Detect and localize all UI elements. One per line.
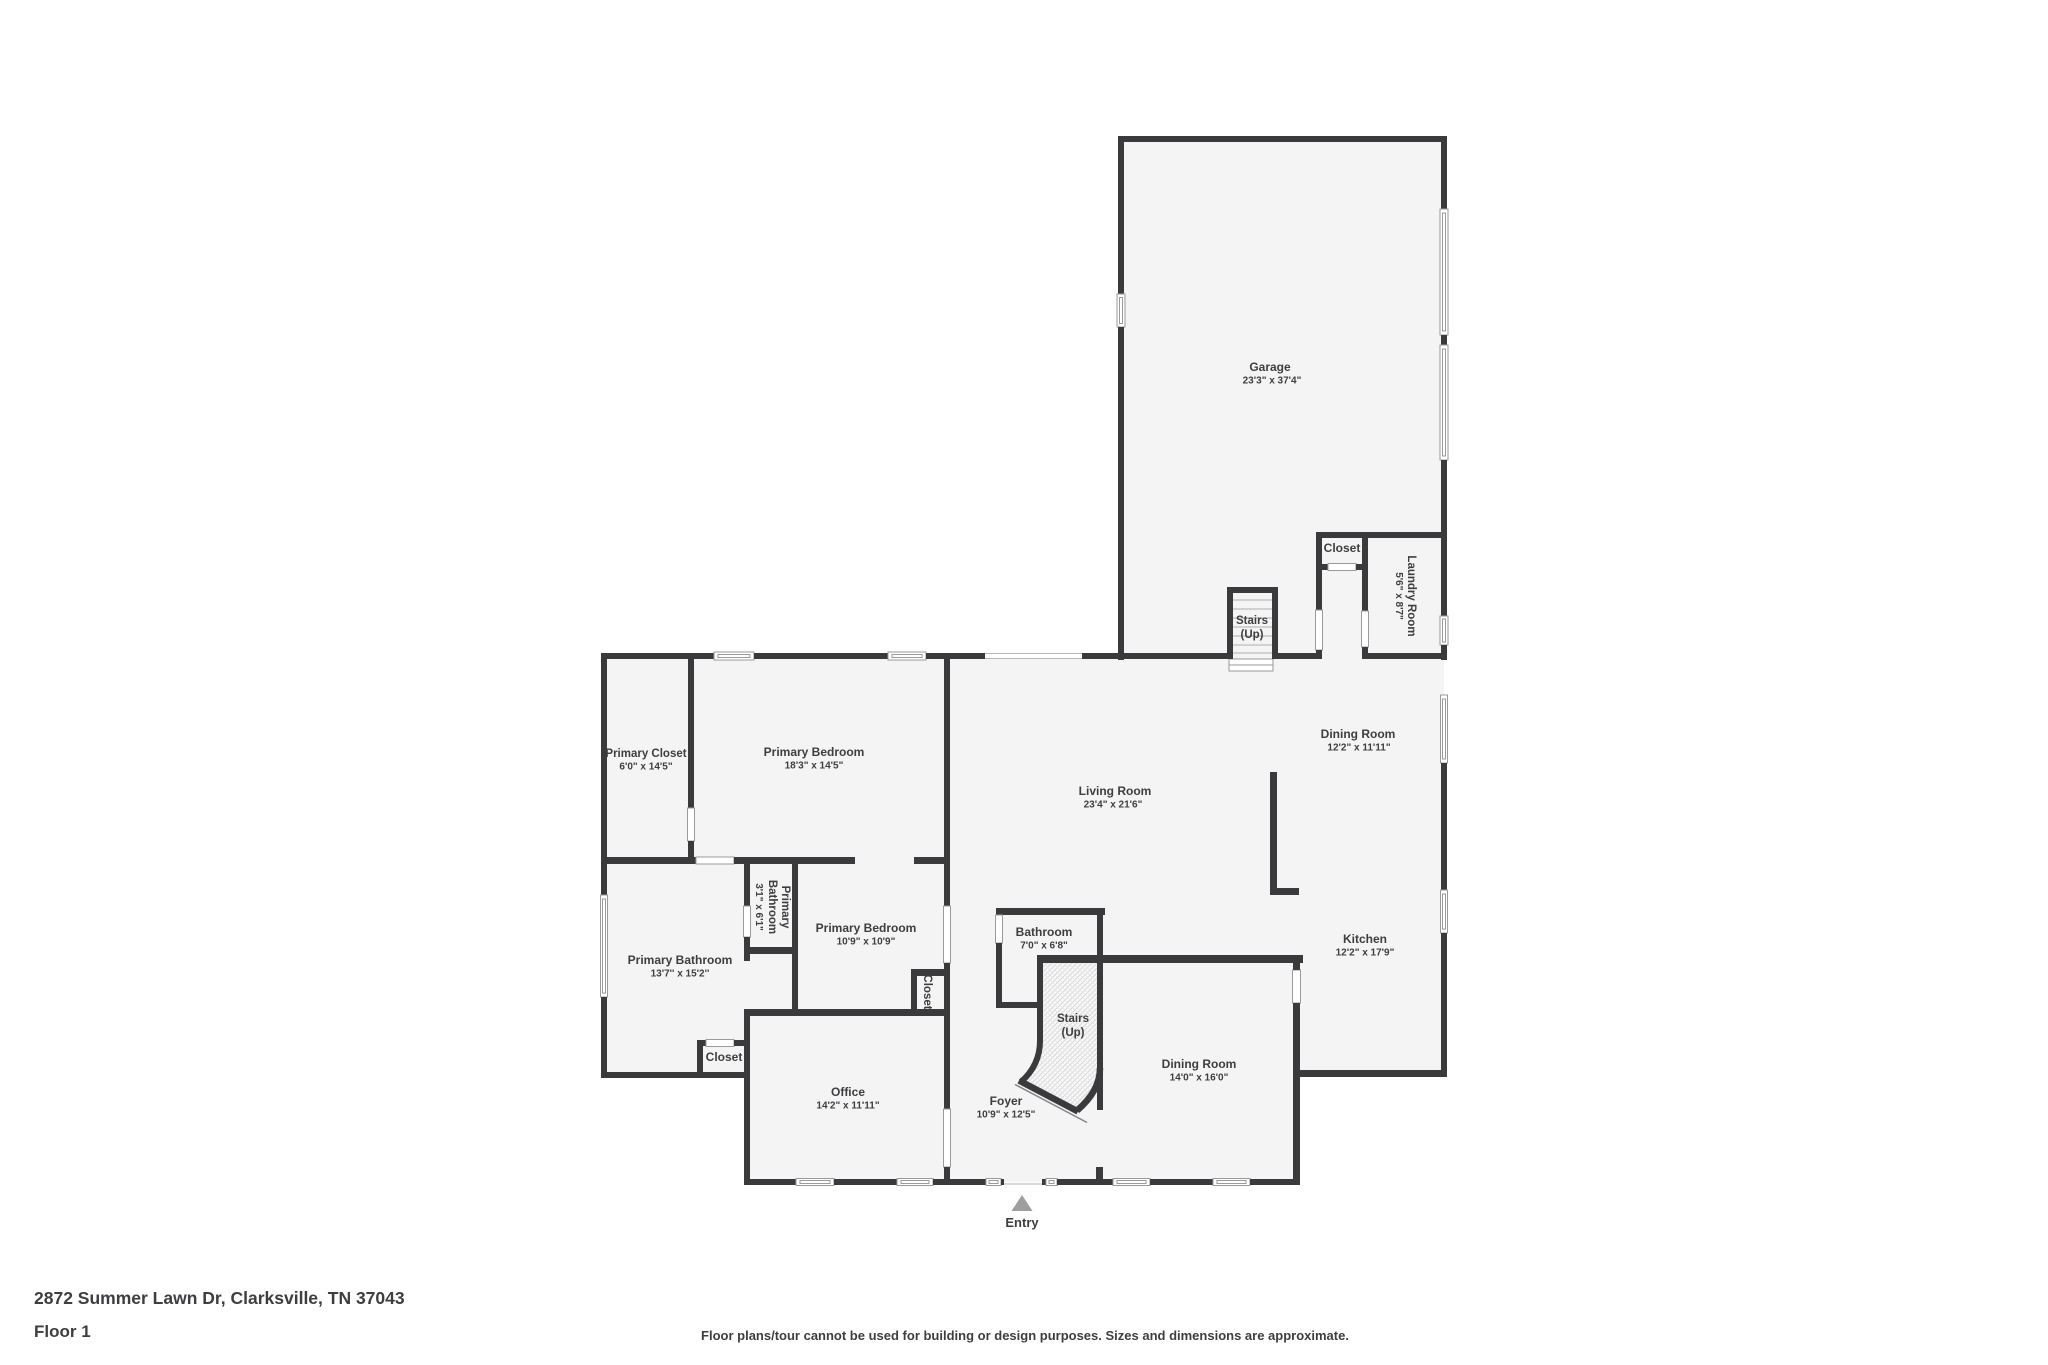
svg-text:Primary: Primary xyxy=(779,886,791,929)
svg-text:Primary Closet: Primary Closet xyxy=(605,748,686,760)
svg-text:Foyer: Foyer xyxy=(990,1094,1023,1108)
svg-text:5'6" x 8'7": 5'6" x 8'7" xyxy=(1393,572,1404,620)
svg-text:Closet: Closet xyxy=(1324,541,1361,555)
svg-text:23'4" x 21'6": 23'4" x 21'6" xyxy=(1084,800,1143,811)
svg-text:Primary Bedroom: Primary Bedroom xyxy=(764,745,865,759)
svg-text:Dining Room: Dining Room xyxy=(1321,727,1396,741)
svg-text:Dining Room: Dining Room xyxy=(1162,1057,1237,1071)
svg-text:12'2" x 11'11": 12'2" x 11'11" xyxy=(1327,743,1390,754)
svg-text:6'0" x 14'5": 6'0" x 14'5" xyxy=(619,762,672,773)
svg-text:Closet: Closet xyxy=(706,1050,743,1064)
svg-text:Stairs: Stairs xyxy=(1236,615,1268,627)
svg-text:Office: Office xyxy=(831,1085,865,1099)
svg-text:14'2" x 11'11": 14'2" x 11'11" xyxy=(816,1101,879,1112)
svg-text:Floor plans/tour cannot be use: Floor plans/tour cannot be used for buil… xyxy=(701,1328,1349,1343)
svg-text:(Up): (Up) xyxy=(1062,1027,1085,1039)
svg-text:7'0" x 6'8": 7'0" x 6'8" xyxy=(1020,941,1068,952)
svg-text:Stairs: Stairs xyxy=(1057,1013,1089,1025)
svg-text:12'2" x 17'9": 12'2" x 17'9" xyxy=(1336,948,1395,959)
svg-text:Closet: Closet xyxy=(921,974,933,1009)
svg-text:10'9" x 12'5": 10'9" x 12'5" xyxy=(977,1110,1036,1121)
svg-text:10'9" x 10'9": 10'9" x 10'9" xyxy=(837,937,896,948)
svg-text:Primary Bathroom: Primary Bathroom xyxy=(628,953,733,967)
svg-text:3'1" x 6'1": 3'1" x 6'1" xyxy=(753,883,764,931)
svg-text:14'0" x 16'0": 14'0" x 16'0" xyxy=(1170,1073,1229,1084)
svg-text:Floor 1: Floor 1 xyxy=(34,1322,91,1341)
svg-text:(Up): (Up) xyxy=(1241,629,1264,641)
svg-text:Living Room: Living Room xyxy=(1079,784,1152,798)
svg-text:2872 Summer Lawn Dr, Clarksvil: 2872 Summer Lawn Dr, Clarksville, TN 370… xyxy=(34,1288,405,1308)
svg-text:18'3" x 14'5": 18'3" x 14'5" xyxy=(785,761,844,772)
svg-text:Bathroom: Bathroom xyxy=(1016,925,1073,939)
svg-text:Laundry Room: Laundry Room xyxy=(1405,555,1417,636)
svg-text:Bathroom: Bathroom xyxy=(766,880,778,934)
svg-text:Kitchen: Kitchen xyxy=(1343,932,1387,946)
svg-text:13'7'' x 15'2'': 13'7'' x 15'2'' xyxy=(651,969,710,980)
svg-text:Entry: Entry xyxy=(1005,1215,1039,1230)
svg-text:Primary Bedroom: Primary Bedroom xyxy=(816,921,917,935)
svg-text:23'3" x 37'4": 23'3" x 37'4" xyxy=(1243,376,1302,387)
svg-text:Garage: Garage xyxy=(1249,360,1291,374)
